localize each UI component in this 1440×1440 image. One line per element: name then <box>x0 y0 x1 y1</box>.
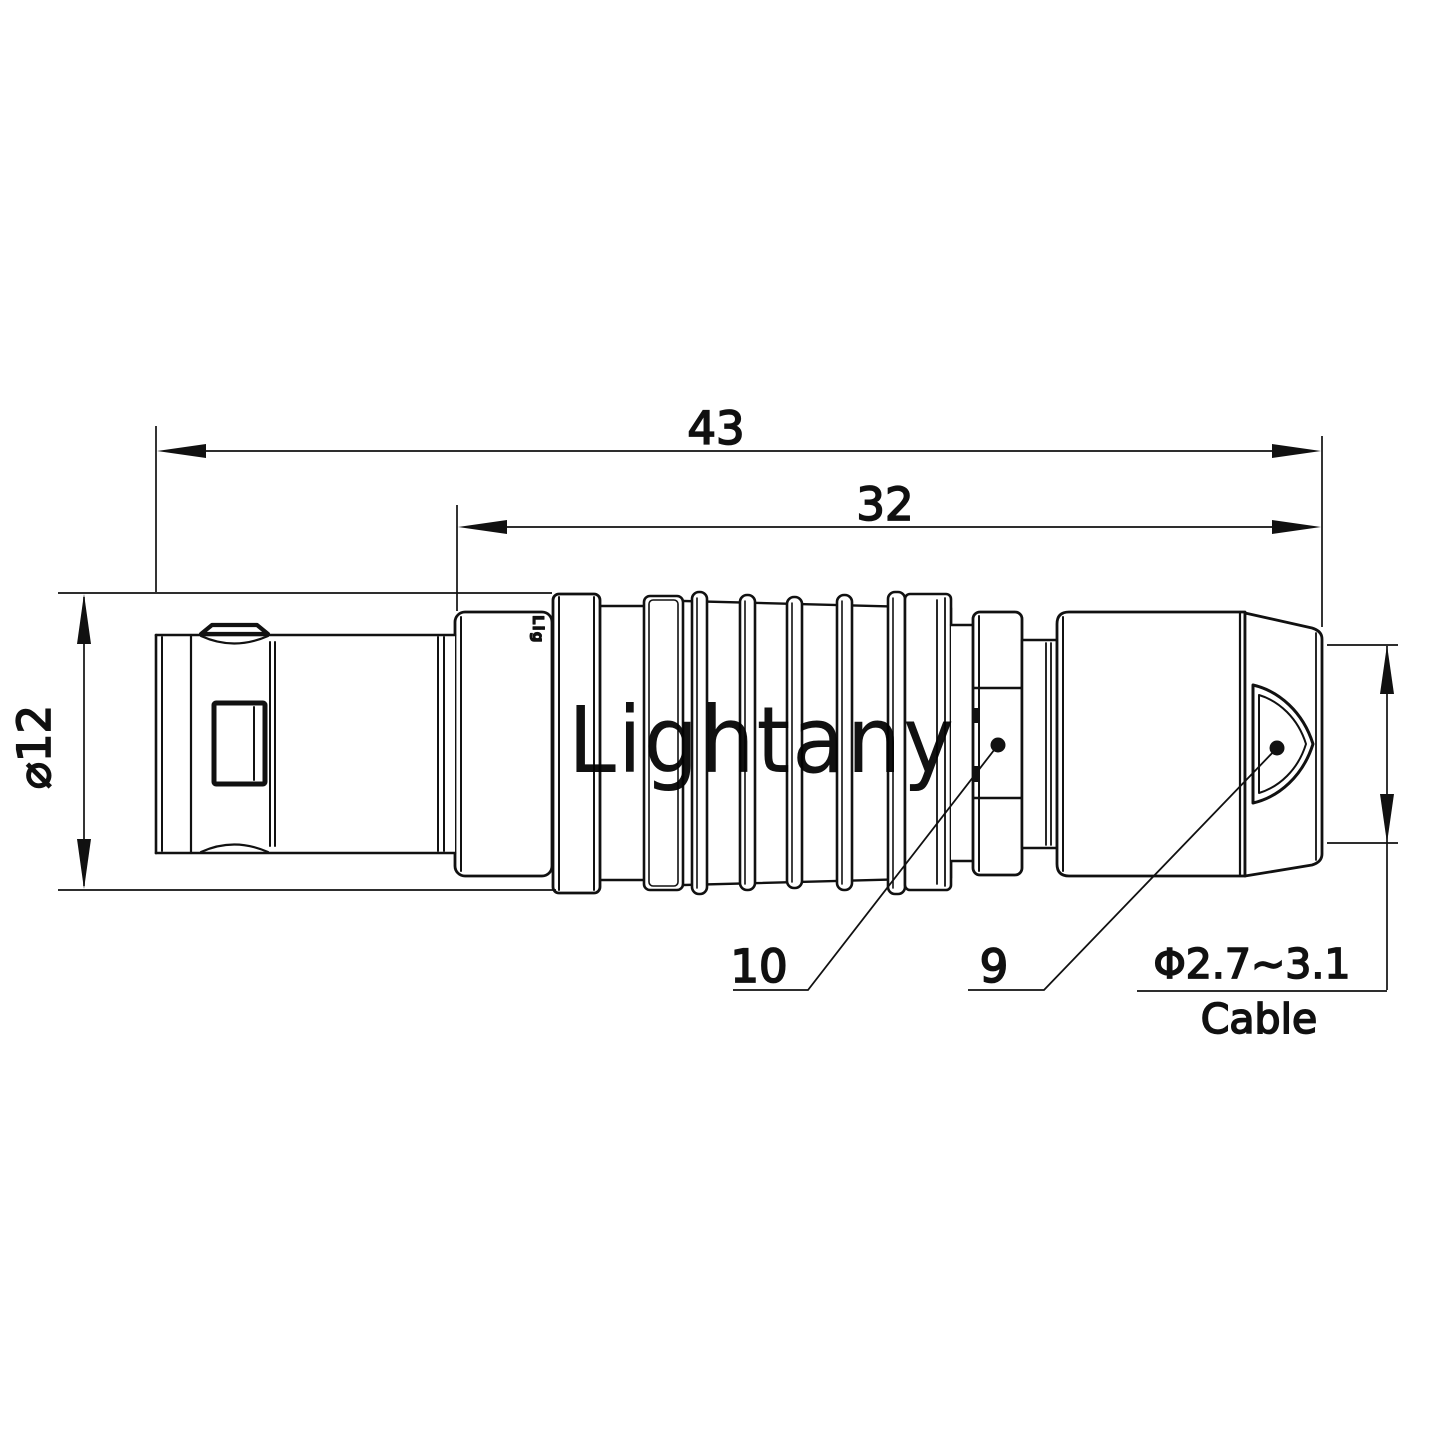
brand-watermark: Lightany <box>568 687 956 794</box>
callout-10-label: 10 <box>730 940 787 993</box>
leader-dot-10 <box>991 738 1006 753</box>
outer-shell: Lig <box>455 612 552 876</box>
cable-label: Cable <box>1201 995 1317 1043</box>
dim-front-length: 32 <box>856 478 913 531</box>
dim-overall-length: 43 <box>687 402 744 455</box>
front-nose <box>156 625 455 853</box>
drawing-canvas: Lig <box>0 0 1440 1440</box>
leader-dot-9 <box>1270 741 1285 756</box>
key-slot <box>214 703 265 784</box>
dim-diameter: ⌀12 <box>8 705 61 789</box>
key-tab <box>201 625 268 634</box>
step-ring <box>1022 640 1057 848</box>
connector-drawing: Lig <box>0 0 1440 1440</box>
cable-diameter-range: Φ2.7~3.1 <box>1153 940 1350 988</box>
callout-9-label: 9 <box>980 940 1009 993</box>
engraved-logo: Lig <box>529 615 547 643</box>
